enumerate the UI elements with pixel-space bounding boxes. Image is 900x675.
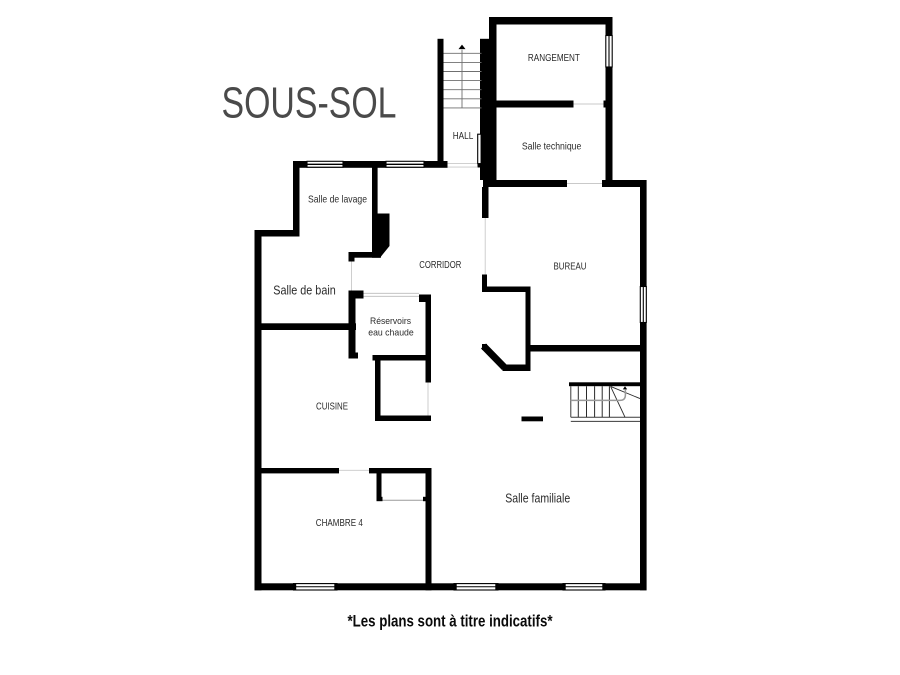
svg-text:BUREAU: BUREAU — [554, 262, 587, 273]
svg-text:Salle de bain: Salle de bain — [273, 284, 336, 298]
svg-text:Salle familiale: Salle familiale — [505, 492, 570, 506]
svg-text:eau chaude: eau chaude — [368, 328, 414, 339]
svg-text:Salle technique: Salle technique — [522, 142, 582, 153]
svg-text:RANGEMENT: RANGEMENT — [528, 53, 581, 64]
svg-text:CHAMBRE 4: CHAMBRE 4 — [316, 518, 363, 529]
svg-text:HALL: HALL — [453, 130, 474, 142]
svg-text:Réservoirs: Réservoirs — [370, 316, 411, 327]
svg-text:CORRIDOR: CORRIDOR — [419, 260, 461, 271]
svg-text:Salle de lavage: Salle de lavage — [308, 195, 367, 206]
svg-text:*Les plans sont à titre indica: *Les plans sont à titre indicatifs* — [348, 613, 554, 631]
svg-text:CUISINE: CUISINE — [316, 402, 348, 413]
svg-text:SOUS-SOL: SOUS-SOL — [222, 79, 397, 128]
